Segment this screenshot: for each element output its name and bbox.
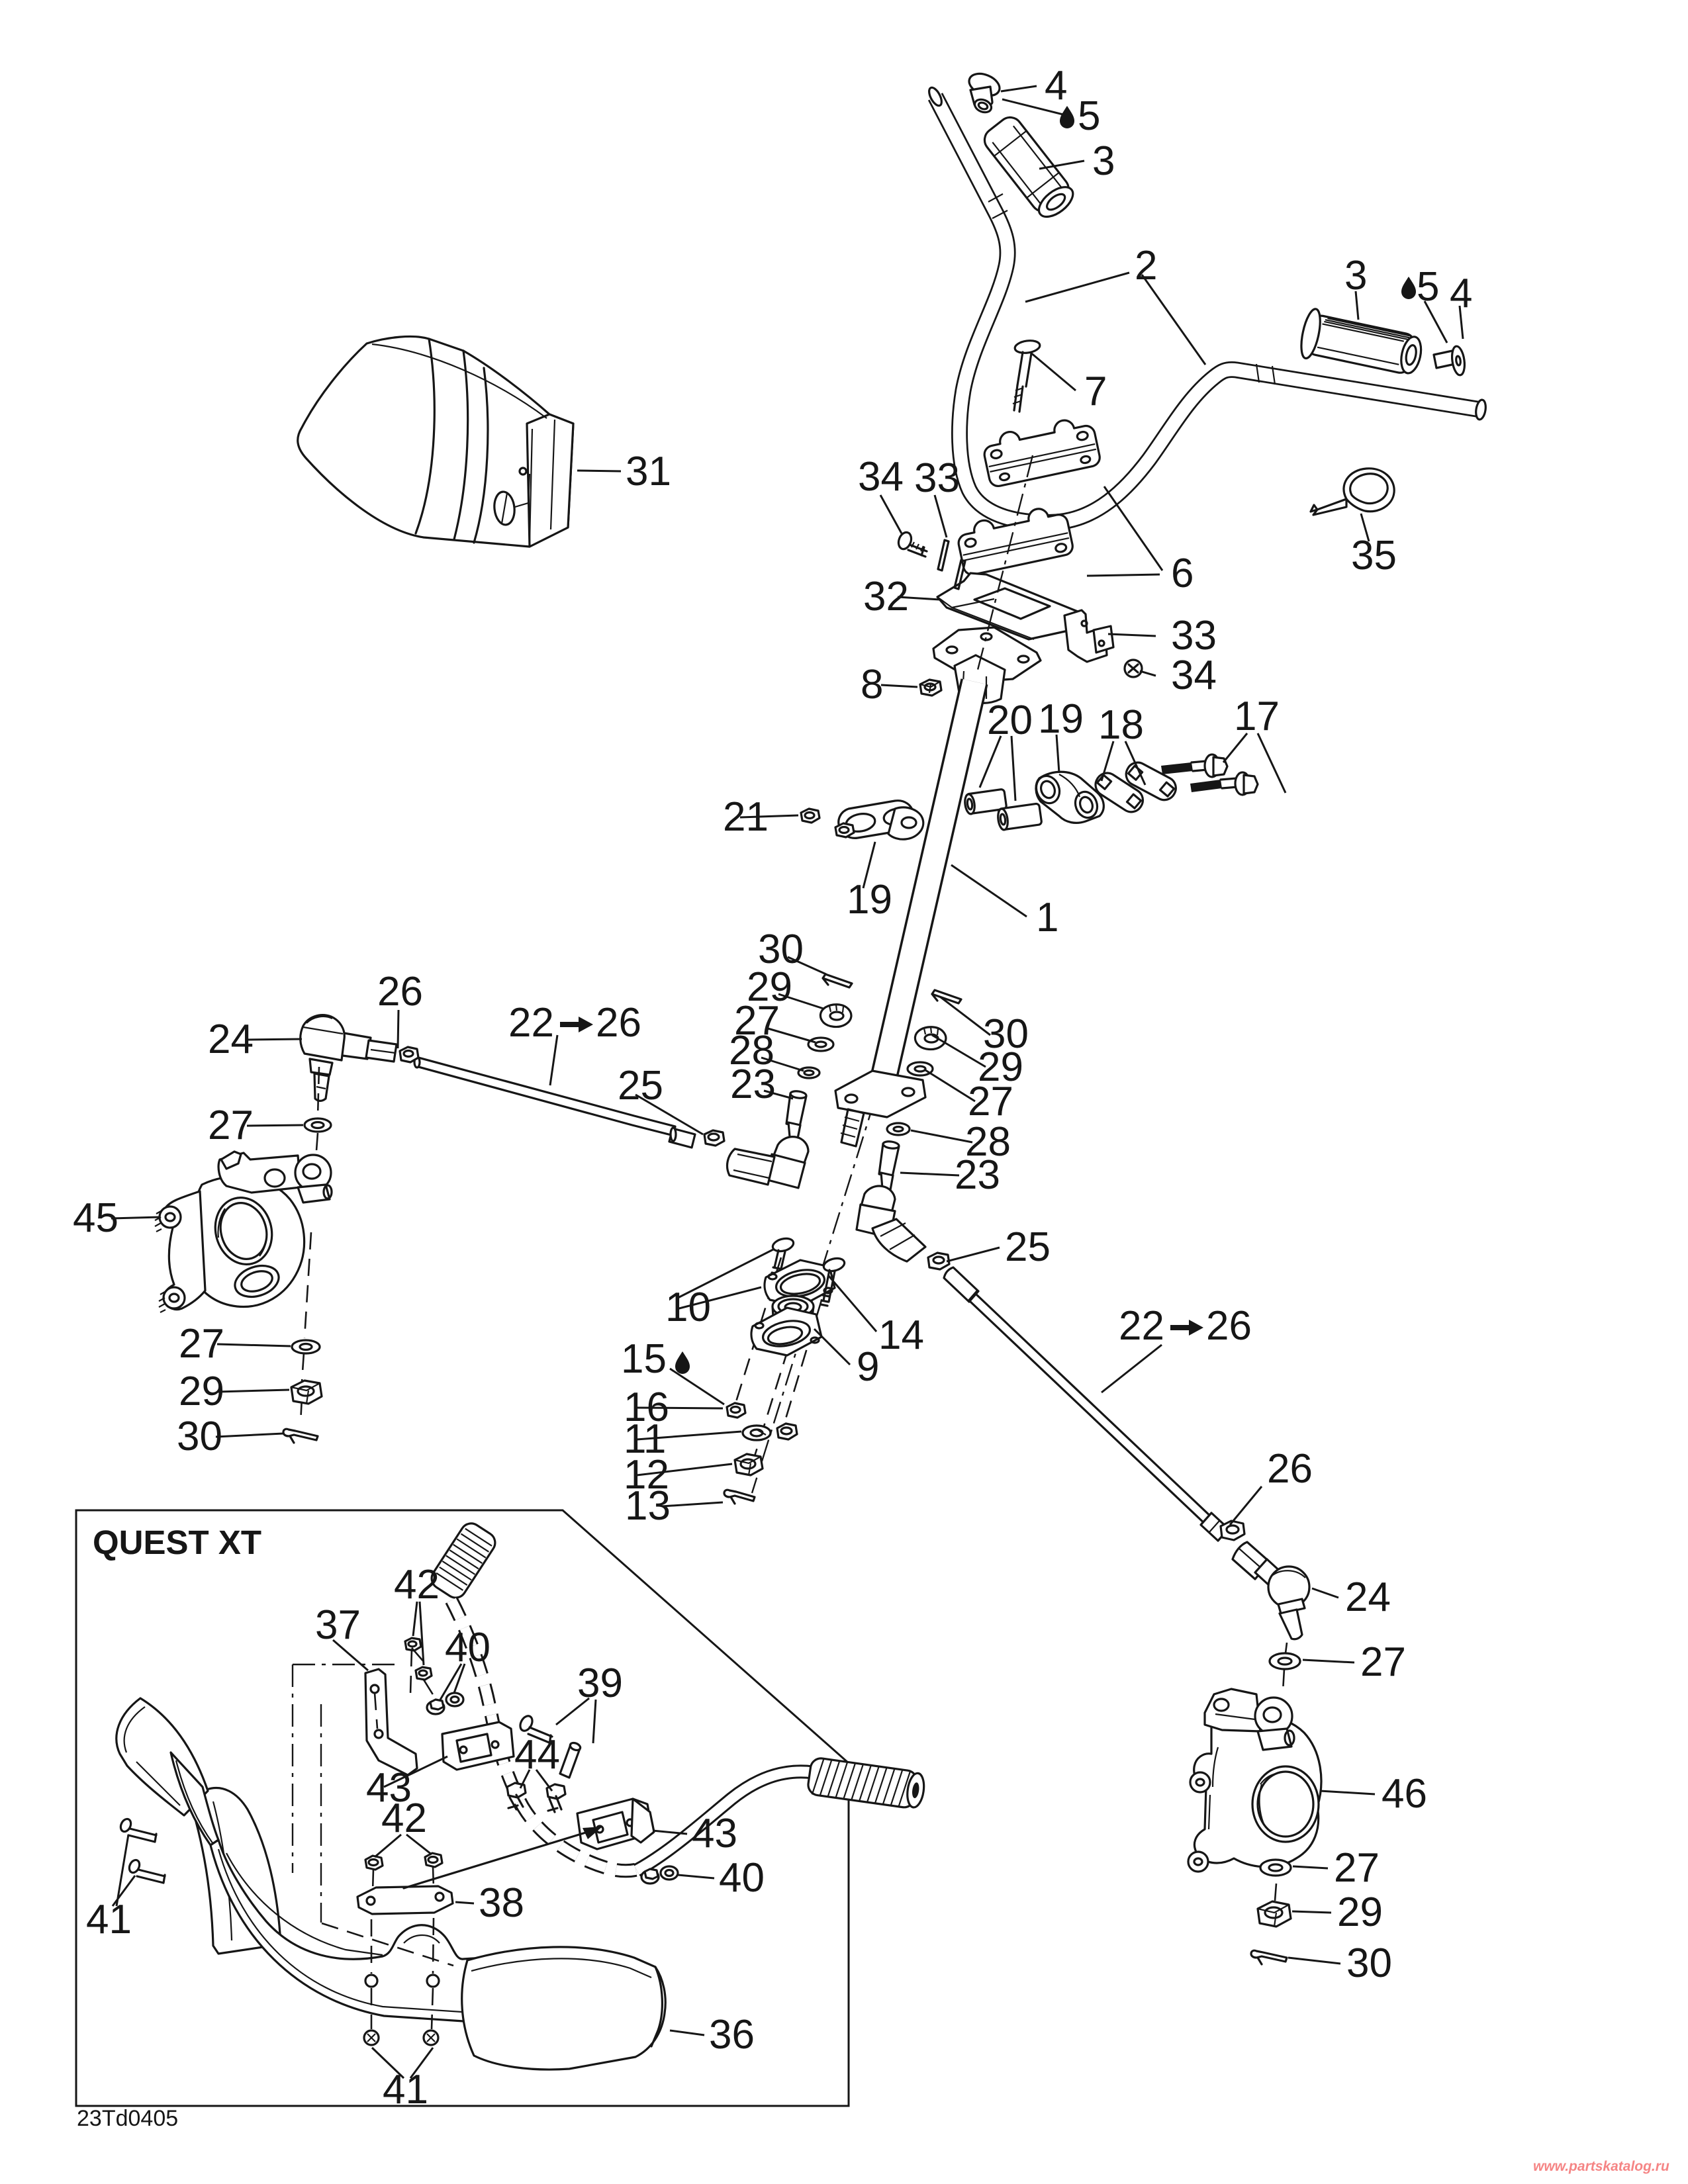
svg-text:46: 46 [1382,1771,1427,1817]
svg-text:5: 5 [1078,93,1100,139]
svg-text:26: 26 [377,969,423,1015]
svg-text:19: 19 [1038,696,1084,742]
svg-text:30: 30 [177,1414,222,1459]
svg-text:42: 42 [394,1562,440,1608]
svg-text:4: 4 [1045,63,1067,109]
svg-text:34: 34 [1171,653,1217,698]
svg-text:9: 9 [857,1344,879,1390]
svg-text:20: 20 [987,698,1033,743]
svg-text:30: 30 [1346,1940,1392,1986]
svg-text:QUEST XT: QUEST XT [93,1524,261,1561]
svg-text:26: 26 [1206,1303,1252,1349]
svg-text:33: 33 [1171,613,1217,659]
svg-text:24: 24 [1345,1574,1391,1620]
svg-text:18: 18 [1098,702,1144,748]
svg-text:37: 37 [315,1602,361,1648]
svg-text:4: 4 [1450,271,1472,316]
svg-text:17: 17 [1234,694,1280,739]
svg-text:6: 6 [1171,551,1194,596]
svg-text:27: 27 [1360,1639,1406,1685]
svg-text:25: 25 [1005,1224,1051,1270]
svg-text:26: 26 [1267,1446,1313,1492]
svg-text:14: 14 [878,1312,924,1358]
svg-text:40: 40 [719,1855,765,1901]
svg-text:22: 22 [508,1000,554,1046]
svg-text:25: 25 [618,1063,663,1109]
svg-text:41: 41 [383,2067,428,2113]
svg-text:26: 26 [596,1000,641,1046]
svg-text:29: 29 [1337,1889,1383,1935]
svg-text:10: 10 [665,1285,711,1330]
svg-text:8: 8 [861,662,883,707]
svg-text:40: 40 [445,1625,491,1670]
svg-text:27: 27 [208,1103,254,1148]
svg-text:5: 5 [1417,264,1439,310]
svg-text:34: 34 [858,454,904,500]
svg-text:27: 27 [1334,1845,1380,1891]
svg-text:19: 19 [847,877,892,923]
svg-text:23Td0405: 23Td0405 [77,2106,178,2131]
svg-text:23: 23 [955,1152,1000,1198]
svg-text:7: 7 [1084,369,1107,414]
svg-text:1: 1 [1036,895,1058,940]
svg-text:31: 31 [626,449,671,494]
svg-text:35: 35 [1351,533,1397,578]
svg-text:23: 23 [730,1062,776,1107]
svg-text:41: 41 [86,1897,132,1942]
svg-text:42: 42 [381,1796,427,1841]
svg-text:33: 33 [914,455,960,501]
svg-text:36: 36 [709,2012,755,2058]
svg-text:38: 38 [479,1880,524,1926]
svg-text:43: 43 [692,1811,737,1856]
svg-text:3: 3 [1092,138,1115,184]
svg-text:39: 39 [577,1661,623,1706]
svg-text:15: 15 [621,1336,667,1382]
svg-text:www.partskatalog.ru: www.partskatalog.ru [1533,2159,1669,2174]
svg-text:22: 22 [1119,1303,1164,1349]
